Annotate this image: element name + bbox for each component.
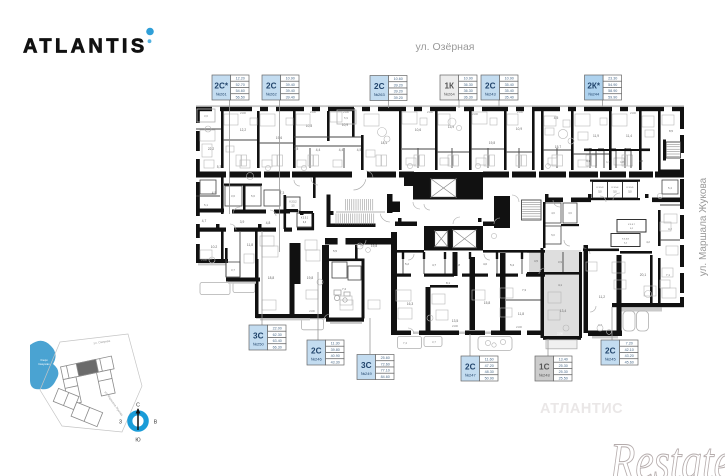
svg-text:№250: №250: [253, 342, 265, 347]
svg-text:3,9: 3,9: [558, 260, 562, 264]
svg-text:18,4: 18,4: [381, 141, 387, 145]
svg-text:2100: 2100: [630, 111, 636, 115]
svg-text:7,4: 7,4: [342, 287, 346, 291]
svg-text:13.40: 13.40: [559, 358, 568, 362]
svg-text:36.30: 36.30: [464, 89, 473, 93]
svg-text:3,7: 3,7: [432, 340, 436, 344]
svg-text:1,7: 1,7: [606, 161, 610, 164]
svg-text:1С: 1С: [539, 362, 550, 371]
svg-text:13,4: 13,4: [560, 309, 567, 313]
svg-text:№245: №245: [605, 357, 617, 362]
svg-text:52.70: 52.70: [236, 83, 245, 87]
svg-text:К 3.5.5: К 3.5.5: [627, 187, 635, 189]
svg-text:4,5: 4,5: [357, 148, 362, 152]
svg-text:2100: 2100: [452, 324, 458, 328]
svg-text:7.20: 7.20: [626, 342, 633, 346]
svg-text:2100: 2100: [201, 258, 207, 262]
svg-text:4,2: 4,2: [646, 240, 650, 244]
svg-text:№246: №246: [311, 357, 323, 362]
svg-text:40.90: 40.90: [331, 354, 340, 358]
svg-text:2100: 2100: [516, 325, 522, 329]
svg-text:З: З: [119, 420, 122, 426]
svg-text:№244: №244: [588, 92, 600, 97]
svg-text:15,8: 15,8: [484, 301, 491, 305]
svg-text:23.30: 23.30: [608, 77, 617, 81]
svg-text:Ю: Ю: [135, 438, 140, 444]
svg-text:36.30: 36.30: [464, 83, 473, 87]
svg-text:С: С: [136, 403, 140, 409]
svg-text:10.90: 10.90: [464, 77, 473, 81]
svg-text:43.30: 43.30: [331, 360, 340, 364]
svg-text:11,2: 11,2: [599, 295, 605, 299]
svg-text:66.30: 66.30: [273, 345, 282, 349]
svg-text:5,4: 5,4: [668, 186, 672, 190]
svg-text:39.40: 39.40: [286, 89, 295, 93]
svg-text:39.40: 39.40: [286, 95, 295, 99]
svg-text:№248: №248: [539, 373, 551, 378]
svg-text:2100: 2100: [310, 110, 316, 114]
svg-text:4,5: 4,5: [534, 259, 538, 263]
svg-text:35.40: 35.40: [505, 95, 514, 99]
svg-text:54.90: 54.90: [608, 83, 617, 87]
svg-text:В: В: [154, 420, 158, 426]
svg-text:19,8: 19,8: [371, 244, 377, 248]
svg-text:№263: №263: [374, 92, 386, 97]
svg-text:10.2: 10.2: [211, 245, 218, 249]
svg-text:59.90: 59.90: [608, 95, 617, 99]
svg-text:72.60: 72.60: [381, 362, 390, 366]
svg-text:2100: 2100: [309, 309, 315, 313]
svg-text:2С: 2С: [266, 81, 277, 90]
svg-text:АТЛАНТИС: АТЛАНТИС: [540, 401, 623, 417]
svg-text:8,5: 8,5: [669, 129, 673, 133]
svg-text:Озеро: Озеро: [40, 359, 48, 362]
svg-text:10,9: 10,9: [516, 127, 522, 131]
svg-text:2С: 2С: [485, 81, 496, 90]
svg-text:42.10: 42.10: [625, 348, 634, 352]
svg-text:7,1: 7,1: [666, 273, 670, 277]
svg-text:19,8: 19,8: [489, 141, 495, 145]
svg-text:39.40: 39.40: [286, 83, 295, 87]
svg-text:ул. Озёрная: ул. Озёрная: [416, 41, 475, 53]
svg-text:4,6: 4,6: [551, 211, 555, 215]
svg-text:15,7: 15,7: [555, 145, 561, 149]
svg-text:ATLANTIS: ATLANTIS: [23, 36, 148, 58]
svg-text:35.40: 35.40: [505, 83, 514, 87]
svg-text:48.30: 48.30: [485, 370, 494, 374]
svg-text:3,9: 3,9: [240, 220, 245, 224]
svg-text:3С: 3С: [361, 361, 372, 370]
svg-text:5,2: 5,2: [405, 262, 409, 266]
svg-text:№261: №261: [216, 92, 228, 97]
svg-text:2С: 2С: [374, 82, 385, 91]
svg-text:10,9: 10,9: [342, 123, 348, 127]
svg-text:11,8: 11,8: [518, 312, 524, 316]
svg-text:2С: 2С: [311, 346, 322, 355]
svg-text:56.50: 56.50: [236, 95, 245, 99]
svg-text:11,8: 11,8: [247, 243, 253, 247]
svg-text:4,0: 4,0: [483, 262, 487, 266]
svg-text:11.30: 11.30: [331, 342, 340, 346]
svg-text:7,3: 7,3: [280, 191, 285, 195]
svg-text:2К*: 2К*: [587, 81, 601, 90]
svg-text:3,6: 3,6: [568, 211, 572, 215]
svg-text:3С: 3С: [253, 331, 264, 340]
svg-text:22.00: 22.00: [273, 327, 282, 331]
svg-text:63.40: 63.40: [273, 339, 282, 343]
svg-text:4,2: 4,2: [668, 227, 672, 231]
svg-text:11,4: 11,4: [626, 134, 632, 138]
svg-text:10,8: 10,8: [306, 124, 312, 128]
svg-text:43.20: 43.20: [625, 354, 634, 358]
svg-text:4,8: 4,8: [266, 221, 271, 225]
svg-text:4,1: 4,1: [558, 283, 562, 287]
svg-text:2100: 2100: [343, 110, 349, 114]
svg-text:39.20: 39.20: [394, 96, 403, 100]
svg-text:35.40: 35.40: [505, 89, 514, 93]
svg-text:25.30: 25.30: [559, 364, 568, 368]
svg-text:54.60: 54.60: [236, 89, 245, 93]
svg-text:1К: 1К: [444, 81, 455, 90]
svg-text:62.30: 62.30: [273, 333, 282, 337]
svg-text:7,4: 7,4: [403, 341, 407, 345]
svg-text:4,3: 4,3: [639, 160, 643, 163]
svg-text:2100: 2100: [557, 332, 563, 336]
svg-text:22,2: 22,2: [208, 147, 214, 151]
svg-text:5,1: 5,1: [204, 203, 208, 207]
svg-text:4,5: 4,5: [294, 147, 299, 151]
svg-text:16,3: 16,3: [407, 302, 414, 306]
svg-text:4,7: 4,7: [202, 219, 207, 223]
svg-text:45.60: 45.60: [625, 360, 634, 364]
svg-text:5,9: 5,9: [344, 116, 348, 120]
svg-text:4,4: 4,4: [339, 148, 344, 152]
svg-text:77.10: 77.10: [381, 369, 390, 373]
svg-text:2100: 2100: [472, 112, 478, 116]
svg-text:К 3.5.3: К 3.5.3: [597, 187, 605, 189]
svg-text:20,1: 20,1: [640, 273, 647, 277]
svg-text:11,9: 11,9: [593, 134, 599, 138]
svg-text:К 3.5.4: К 3.5.4: [612, 187, 620, 189]
svg-text:Кожухово: Кожухово: [38, 363, 50, 366]
svg-text:№264: №264: [444, 92, 456, 97]
svg-text:12.20: 12.20: [236, 77, 245, 81]
svg-text:4,4: 4,4: [316, 148, 321, 152]
svg-text:ул. Маршала Жукова: ул. Маршала Жукова: [698, 177, 709, 276]
svg-text:№262: №262: [266, 92, 278, 97]
svg-text:2100: 2100: [517, 110, 523, 114]
svg-text:10.90: 10.90: [505, 77, 514, 81]
svg-text:3,7: 3,7: [231, 268, 235, 272]
svg-text:10,6: 10,6: [415, 128, 421, 132]
svg-text:К 3.5.1: К 3.5.1: [301, 218, 309, 220]
svg-text:58.90: 58.90: [608, 89, 617, 93]
svg-text:5,5: 5,5: [333, 249, 337, 253]
svg-text:36.30: 36.30: [464, 95, 473, 99]
svg-text:50.90: 50.90: [485, 376, 494, 380]
svg-text:84.60: 84.60: [381, 375, 390, 379]
svg-text:2С*: 2С*: [214, 81, 228, 90]
svg-text:2С: 2С: [465, 362, 476, 371]
svg-text:39.20: 39.20: [394, 90, 403, 94]
svg-text:№249: №249: [361, 371, 373, 376]
svg-text:5,3: 5,3: [217, 165, 222, 169]
svg-text:39.20: 39.20: [394, 83, 403, 87]
svg-text:№247: №247: [465, 373, 477, 378]
svg-text:47.20: 47.20: [485, 364, 494, 368]
svg-text:39.80: 39.80: [331, 348, 340, 352]
svg-text:7,3: 7,3: [522, 288, 526, 292]
svg-text:К 3.5.8: К 3.5.8: [622, 239, 630, 241]
svg-text:К.3.5.2: К.3.5.2: [289, 202, 297, 204]
svg-text:10.90: 10.90: [286, 77, 295, 81]
svg-text:5,0: 5,0: [551, 233, 555, 237]
svg-text:№243: №243: [485, 92, 497, 97]
svg-text:19,8: 19,8: [307, 276, 314, 280]
svg-text:2100: 2100: [427, 110, 433, 114]
svg-text:4,5: 4,5: [212, 191, 217, 195]
svg-text:25.50: 25.50: [559, 376, 568, 380]
svg-text:5,6: 5,6: [251, 194, 255, 198]
svg-text:3,6: 3,6: [204, 114, 208, 118]
svg-text:12,2: 12,2: [240, 128, 246, 132]
svg-text:4,7: 4,7: [432, 263, 436, 267]
svg-text:2100: 2100: [240, 111, 246, 115]
svg-text:25.60: 25.60: [381, 356, 390, 360]
svg-text:8,1: 8,1: [446, 281, 450, 285]
svg-text:11.60: 11.60: [485, 358, 494, 362]
svg-text:13,5: 13,5: [452, 319, 459, 323]
svg-text:2С: 2С: [605, 346, 616, 355]
svg-text:Restate: Restate: [609, 433, 725, 476]
svg-text:10.60: 10.60: [394, 77, 403, 81]
svg-text:К 3.5.7: К 3.5.7: [628, 224, 636, 226]
svg-text:5,4: 5,4: [510, 263, 514, 267]
svg-text:25.30: 25.30: [559, 370, 568, 374]
svg-text:3,6: 3,6: [231, 194, 235, 198]
svg-text:18,8: 18,8: [268, 276, 275, 280]
